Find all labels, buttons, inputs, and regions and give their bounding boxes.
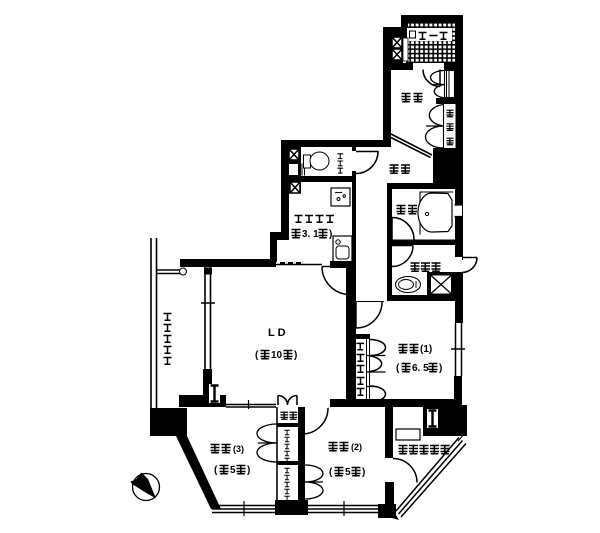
svg-text:3. 1: 3. 1 [302, 229, 319, 240]
svg-text:): ) [362, 467, 365, 478]
svg-text:10: 10 [271, 350, 283, 361]
svg-text:L D: L D [268, 327, 286, 339]
svg-text:): ) [294, 350, 297, 361]
svg-text:5: 5 [345, 467, 351, 478]
svg-text:): ) [247, 465, 250, 476]
svg-text:5: 5 [230, 465, 236, 476]
svg-text:(1): (1) [420, 344, 432, 355]
svg-text:): ) [439, 363, 442, 374]
svg-text:(3): (3) [233, 444, 244, 454]
svg-text:6. 5: 6. 5 [412, 363, 429, 374]
svg-text:(2): (2) [351, 442, 362, 452]
svg-text:): ) [329, 229, 332, 240]
